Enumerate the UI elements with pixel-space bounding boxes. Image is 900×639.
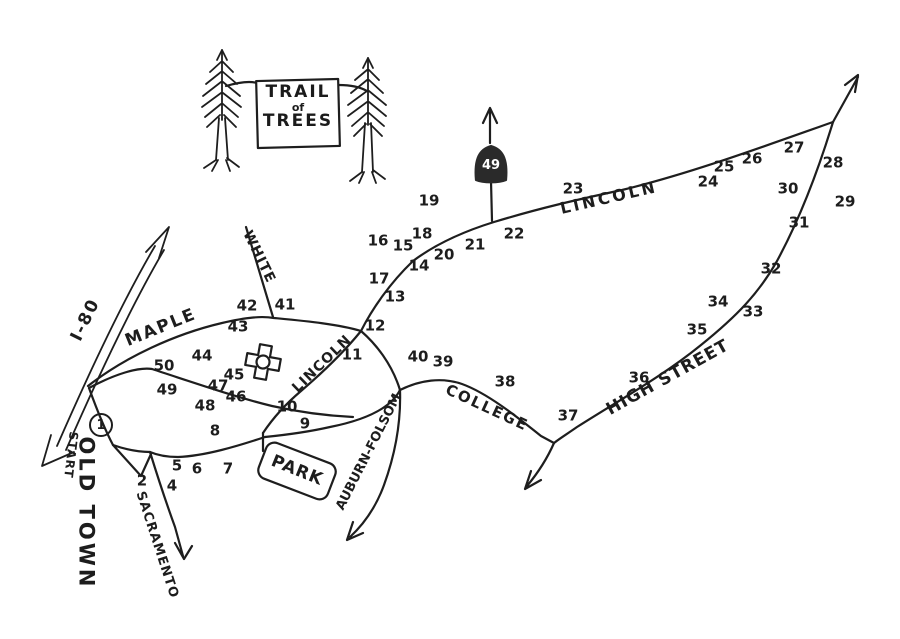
lincoln-arrow (833, 75, 858, 122)
road-lincoln-upper (361, 122, 833, 331)
church-cross-icon (243, 342, 282, 381)
road-college (400, 380, 554, 443)
road-sacramento (150, 452, 192, 559)
pine-tree-right-icon (348, 58, 386, 183)
map-artwork (0, 0, 900, 639)
south-arrow (525, 443, 554, 489)
road-maple-loop-top (88, 317, 361, 386)
sign-title: TRAIL of TREES (258, 84, 338, 144)
trail-of-trees-map: TRAIL of TREES 49 MAPLEWHITELINCOLNLINCO… (0, 0, 900, 639)
road-oldtown-block (113, 445, 151, 476)
road-loop-east (361, 331, 400, 390)
route-49-label: 49 (478, 158, 504, 173)
sign-line-1: TRAIL (258, 84, 338, 102)
road-inner-street (89, 369, 353, 417)
sign-line-3: TREES (258, 113, 338, 131)
park-box (256, 440, 339, 502)
road-white-street (246, 227, 273, 317)
road-loop-bottom (150, 437, 265, 457)
road-loop-southeast (265, 390, 400, 437)
road-oldtown-west (89, 388, 113, 445)
pine-tree-left-icon (202, 50, 241, 171)
